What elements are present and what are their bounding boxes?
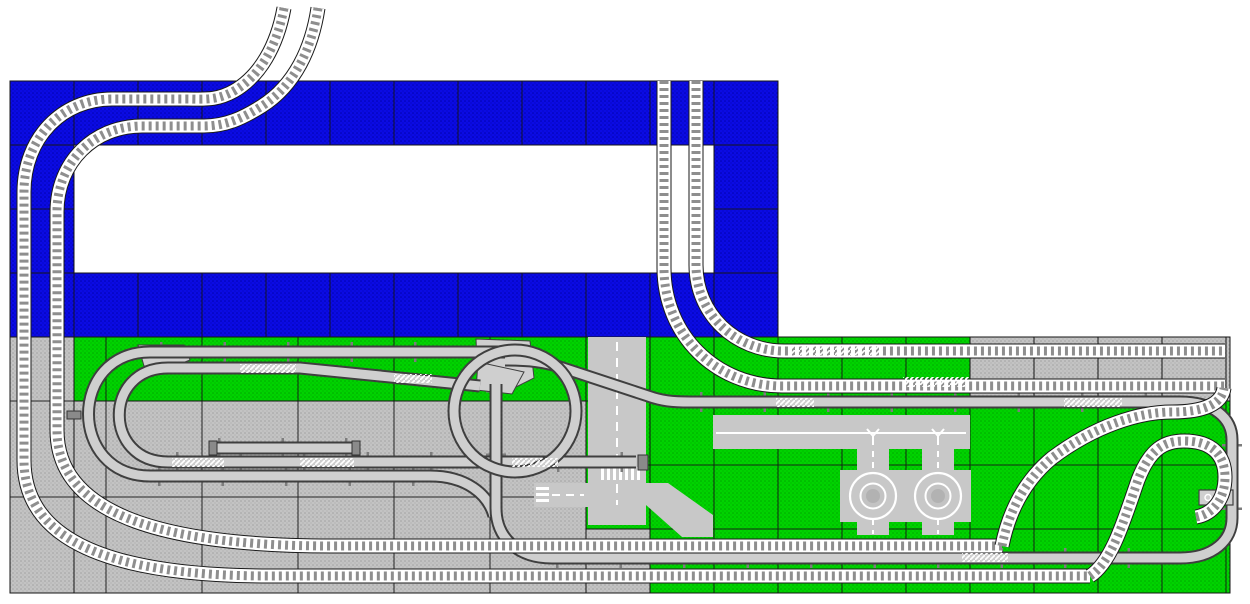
ramp-chevron-8 (776, 398, 814, 407)
ramp-chevron-10 (962, 553, 1008, 562)
ramp-chevron-5 (172, 458, 224, 467)
ramp-chevron-2 (903, 377, 969, 387)
monorail-end-cap-4[interactable] (67, 411, 81, 419)
track-layout-page (0, 0, 1250, 604)
ramp-chevron-7 (512, 458, 558, 467)
ramp-chevron-6 (300, 458, 354, 467)
monorail-end-cap-2[interactable] (352, 441, 360, 455)
ramp-chevron-3 (240, 364, 296, 373)
ramp-chevron-9 (1064, 398, 1122, 407)
ramp-chevron-1 (788, 346, 883, 356)
track-layout-canvas[interactable] (0, 0, 1250, 604)
monorail-end-cap-3[interactable] (209, 441, 217, 455)
monorail-end-cap-1[interactable] (638, 455, 648, 470)
roundabout-hub (866, 489, 880, 503)
ramp-chevron-4 (394, 374, 432, 383)
roundabout-hub (931, 489, 945, 503)
crosswalk-west-stub (536, 485, 549, 505)
